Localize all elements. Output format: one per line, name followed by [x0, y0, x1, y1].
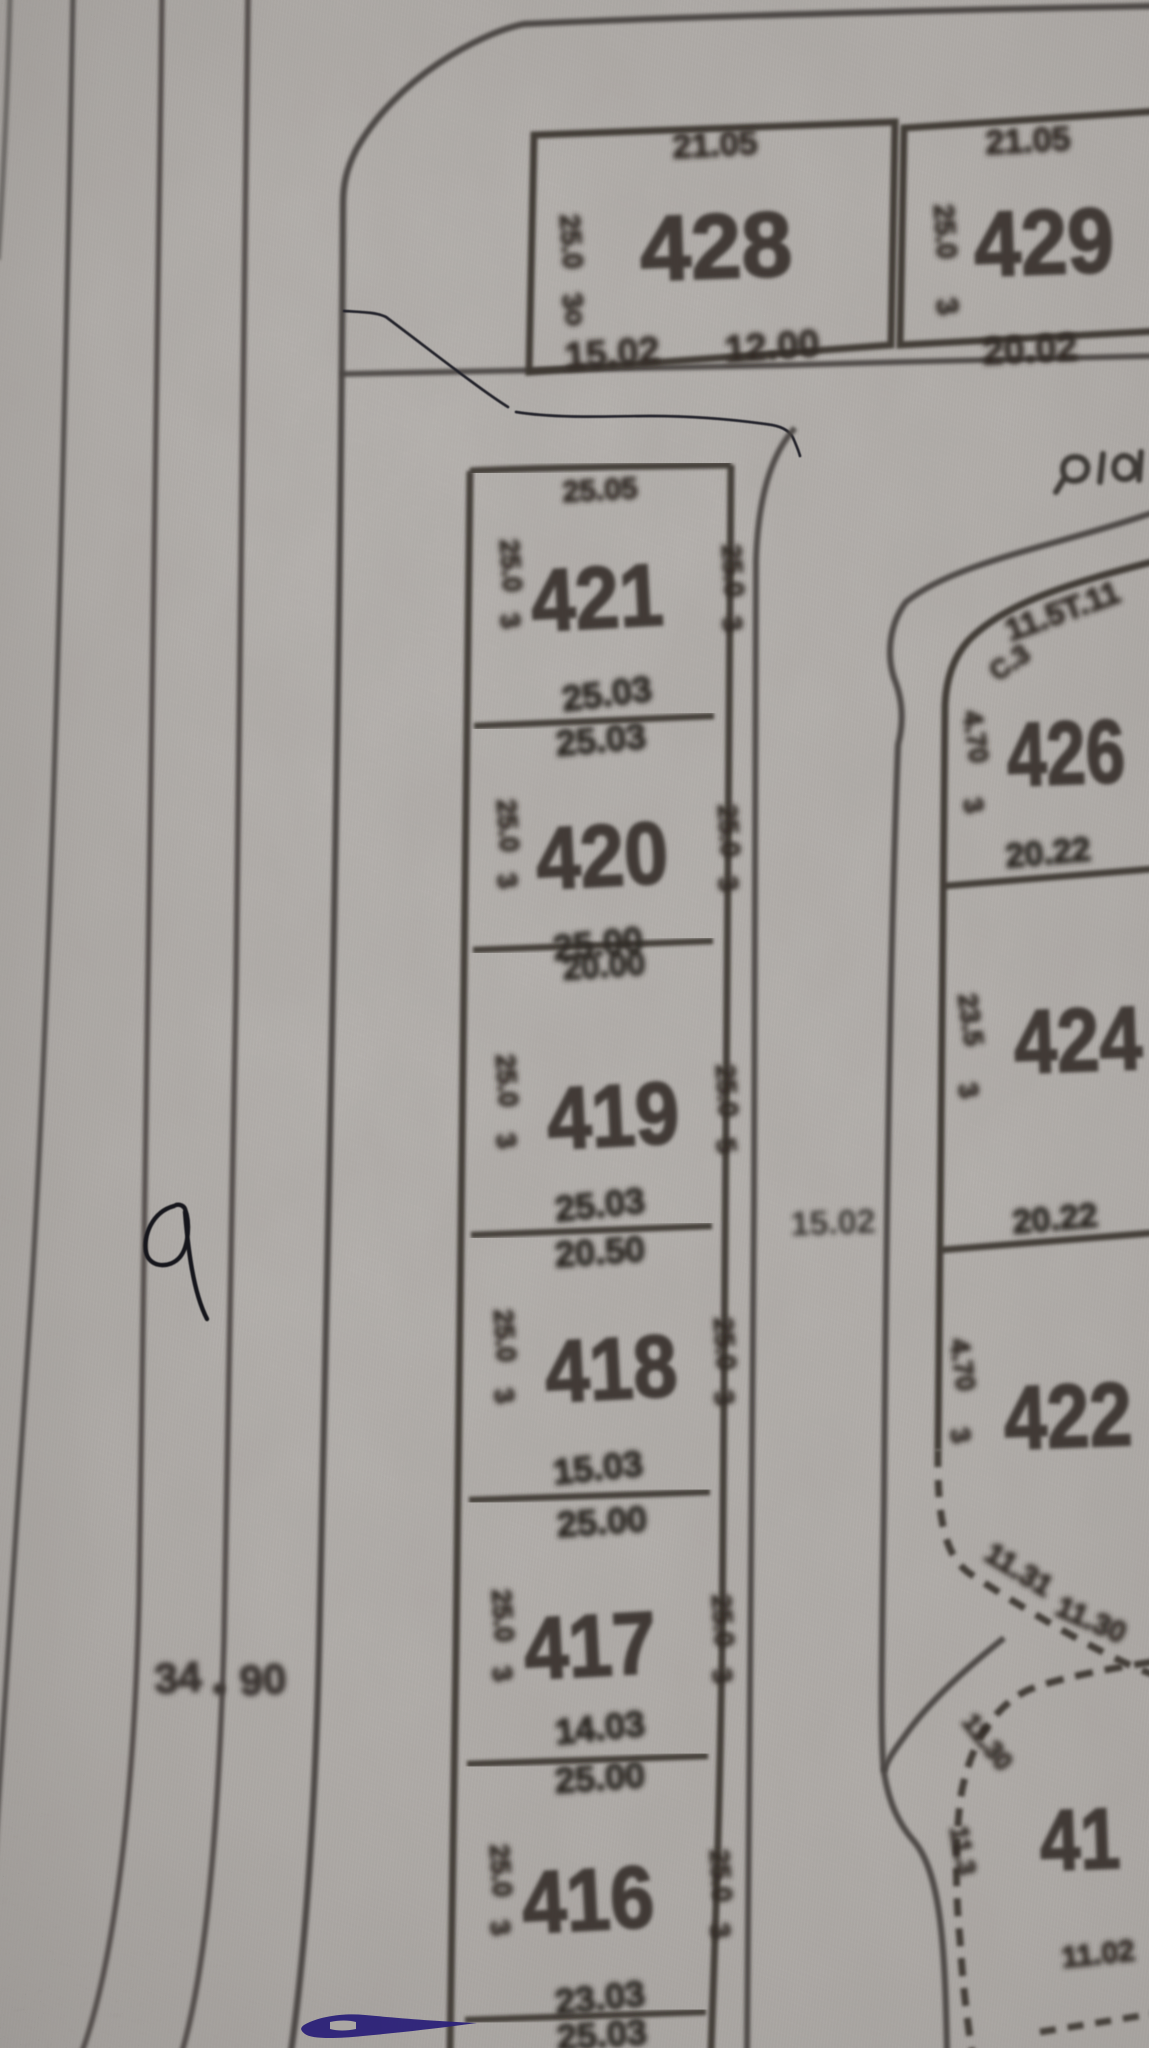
svg-text:20.22: 20.22 [1004, 830, 1092, 875]
svg-text:25.0: 25.0 [486, 1588, 520, 1643]
svg-text:25.00: 25.00 [556, 1498, 649, 1545]
svg-text:25.05: 25.05 [562, 472, 639, 509]
svg-text:21.05: 21.05 [985, 120, 1072, 162]
svg-text:25.0: 25.0 [488, 1308, 522, 1363]
svg-text:422: 422 [1002, 1365, 1133, 1469]
svg-text:12.00: 12.00 [723, 323, 821, 372]
svg-text:34: 34 [153, 1653, 203, 1702]
svg-text:25.0: 25.0 [712, 803, 746, 858]
svg-text:25.0: 25.0 [710, 1063, 744, 1118]
svg-text:20.00: 20.00 [561, 944, 646, 987]
svg-text:15.02: 15.02 [563, 330, 661, 379]
svg-text:419: 419 [545, 1063, 682, 1169]
svg-text:25.0: 25.0 [484, 1843, 518, 1898]
svg-text:426: 426 [1005, 702, 1126, 806]
svg-text:25.0: 25.0 [708, 1316, 742, 1371]
svg-text:20.22: 20.22 [1011, 1196, 1099, 1241]
svg-text:25.0: 25.0 [704, 1848, 738, 1903]
svg-text:25.0: 25.0 [494, 538, 528, 593]
svg-text:25.0: 25.0 [706, 1593, 740, 1648]
svg-text:25.03: 25.03 [554, 715, 647, 764]
svg-text:20.02: 20.02 [981, 327, 1078, 374]
svg-text:25.0: 25.0 [491, 798, 525, 853]
svg-text:41: 41 [1038, 1791, 1121, 1890]
svg-text:15.02: 15.02 [790, 1203, 876, 1244]
svg-text:428: 428 [638, 193, 793, 300]
svg-text:429: 429 [972, 190, 1115, 297]
svg-text:420: 420 [534, 803, 671, 909]
svg-text:25.0: 25.0 [928, 203, 963, 260]
svg-text:416: 416 [520, 1847, 657, 1953]
svg-text:20.50: 20.50 [554, 1228, 647, 1275]
svg-text:418: 418 [543, 1316, 680, 1422]
svg-text:421: 421 [529, 545, 666, 651]
svg-text:25.00: 25.00 [554, 1754, 647, 1801]
svg-text:25.0: 25.0 [554, 213, 589, 270]
svg-text:21.05: 21.05 [672, 124, 759, 166]
svg-text:25.0: 25.0 [490, 1053, 524, 1108]
svg-text:90: 90 [238, 1655, 287, 1704]
svg-text:3o: 3o [556, 291, 592, 329]
svg-text:25.0: 25.0 [716, 543, 750, 598]
svg-text:424: 424 [1012, 989, 1143, 1093]
svg-text:417: 417 [522, 1593, 659, 1699]
svg-text:25.03: 25.03 [555, 2011, 648, 2048]
